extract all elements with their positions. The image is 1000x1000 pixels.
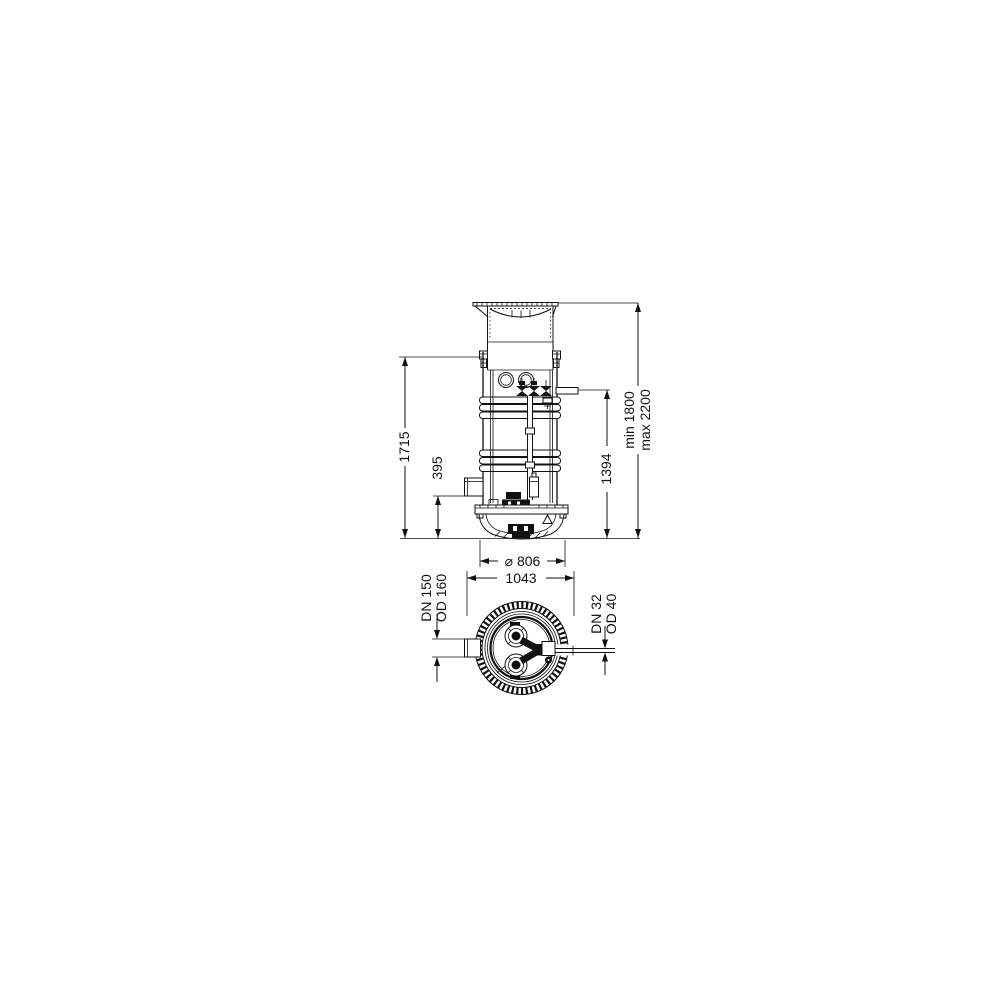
dim-395-label: 395 [429,456,445,480]
telescopic-section [488,307,554,371]
pipe-coupling-1 [526,428,535,434]
outlet-box [542,642,555,656]
vent-port-center [548,659,550,661]
dim-min-label: min 1800 [621,391,637,449]
dim-1043-label: 1043 [505,570,536,586]
pressure-outlet-pipe [556,388,578,395]
rib-band-lower [480,450,561,472]
plan-inlet-pipe [465,639,481,657]
dimension-base-diameter: ⌀ 806 [480,540,565,569]
inlet-dn-label: DN 150 [418,574,434,622]
pressure-od-label: OD 40 [603,594,619,635]
tank-bowl [479,514,564,539]
dim-1715-label: 1715 [396,431,412,462]
plan-view: 1043 DN 150 OD 160 DN 32 OD 40 [418,570,619,695]
inlet-stub [465,478,484,496]
dim-806-label: ⌀ 806 [505,553,541,569]
pressure-dn-label: DN 32 [588,594,604,634]
cover-assembly [473,303,558,319]
pipe-coupling-2 [526,462,535,468]
pump-station-technical-drawing: 1715 395 1394 min 1800 max 2200 [0,0,1000,1000]
dimension-1394: 1394 [578,390,614,538]
float-switch [530,473,539,497]
inlet-od-label: OD 160 [433,574,449,622]
dimension-pressure-line: DN 32 OD 40 [588,594,619,675]
cable-duct-seals [499,373,534,388]
elevation-view: 1715 395 1394 min 1800 max 2200 [396,303,653,570]
collar-clamps [480,351,561,368]
dim-max-label: max 2200 [637,389,653,451]
warning-triangle [543,515,552,524]
dimension-395: 395 [429,456,464,538]
dim-1394-label: 1394 [598,453,614,484]
dimension-1715: 1715 [396,357,483,538]
base-flange [475,505,568,518]
dimension-min-max: min 1800 max 2200 [558,303,653,538]
drawing-page: 1715 395 1394 min 1800 max 2200 [0,0,1000,1000]
dimension-inlet: DN 150 OD 160 [418,574,465,682]
